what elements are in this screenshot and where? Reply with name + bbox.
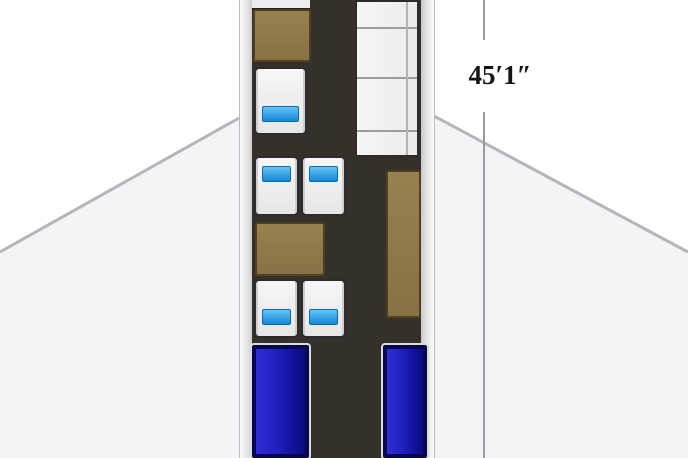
berth-left	[252, 345, 309, 458]
seat-cushion	[309, 166, 338, 182]
seat-cushion	[309, 309, 338, 325]
single-seat-forward	[254, 67, 307, 135]
dimension-line-top	[483, 0, 485, 40]
fuselage-wall-left	[239, 0, 253, 458]
seat-cushion	[262, 166, 291, 182]
seat-pair-aft-right	[301, 279, 346, 338]
seat-cushion	[262, 106, 299, 122]
side-divan	[355, 0, 419, 157]
aircraft-floorplan: 45′1″	[0, 0, 688, 458]
dimension-line-bottom	[483, 112, 485, 458]
aft-cabinet-right	[386, 170, 421, 318]
divan-cushion-line	[357, 27, 417, 29]
seat-pair-aft-left	[254, 279, 299, 338]
forward-cabinet	[253, 9, 311, 62]
right-wing	[434, 116, 688, 458]
left-wing	[0, 118, 239, 458]
divan-cushion-line	[357, 130, 417, 132]
seat-pair-mid-left	[254, 156, 299, 216]
divan-cushion-line	[357, 77, 417, 79]
conference-table	[255, 222, 325, 276]
dimension-label: 45′1″	[452, 60, 548, 91]
seat-cushion	[262, 309, 291, 325]
berth-right	[383, 345, 427, 458]
seat-pair-mid-right	[301, 156, 346, 216]
divan-backrest-line	[406, 2, 408, 155]
